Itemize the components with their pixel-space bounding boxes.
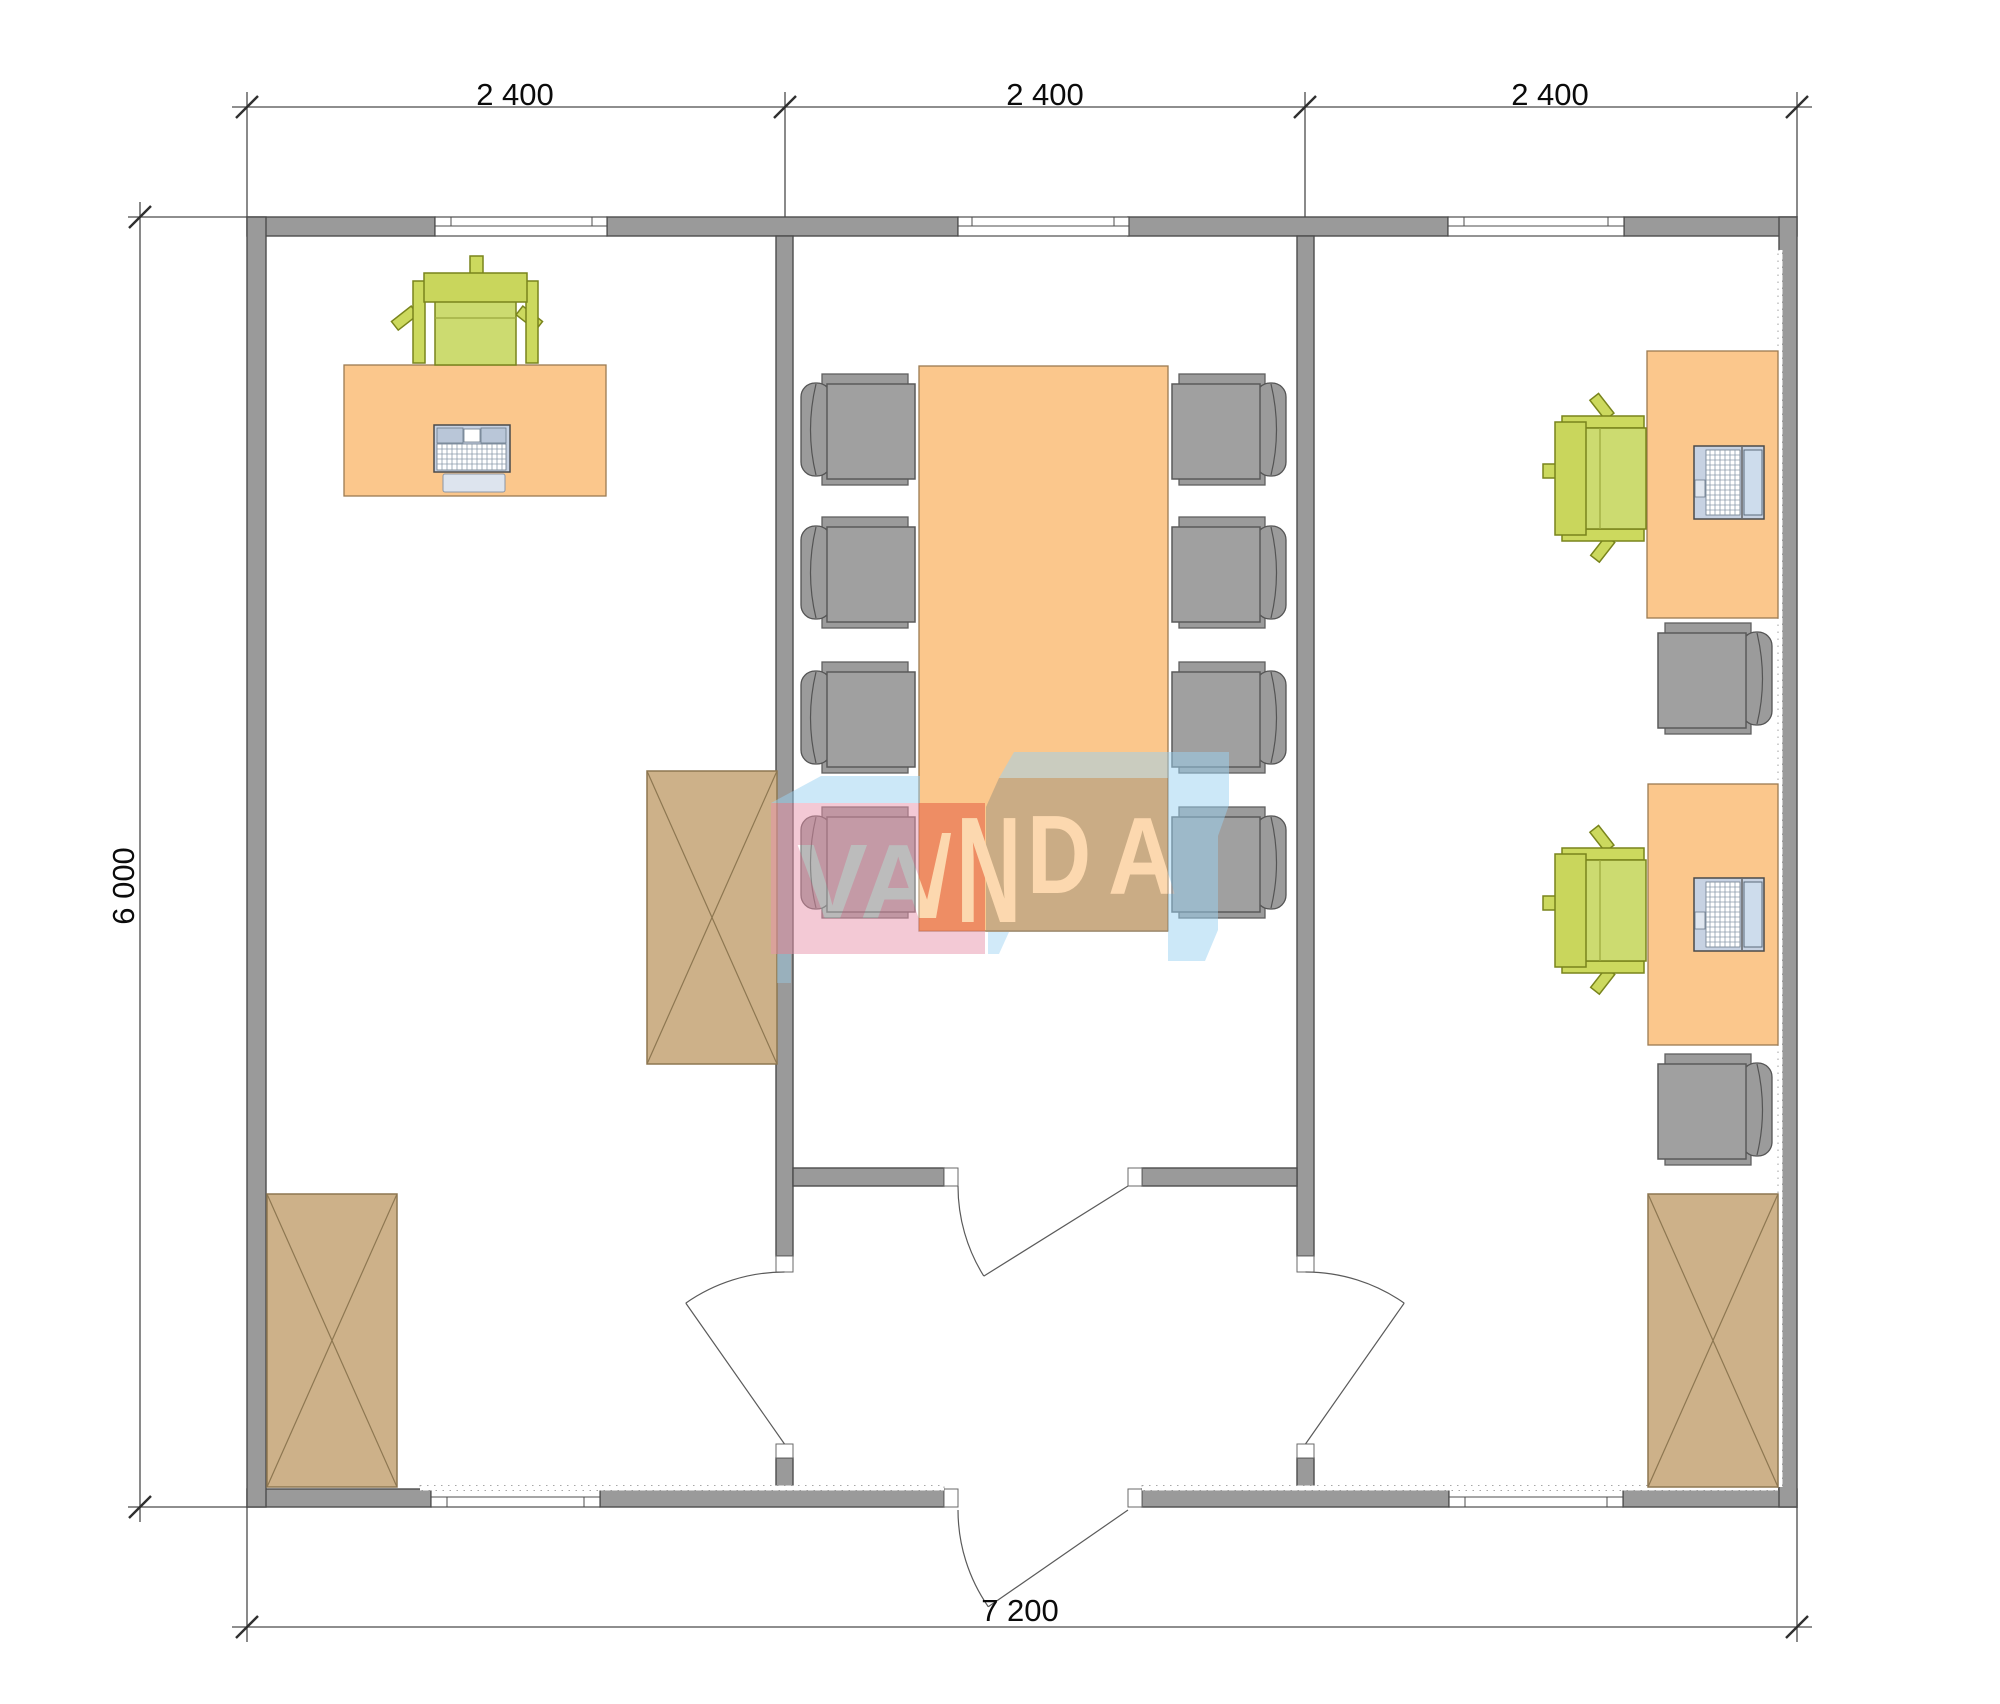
svg-text:2 400: 2 400 <box>476 77 554 112</box>
svg-text:7 200: 7 200 <box>981 1593 1059 1628</box>
svg-text:6 000: 6 000 <box>106 847 141 925</box>
svg-text:2 400: 2 400 <box>1511 77 1589 112</box>
svg-text:2 400: 2 400 <box>1006 77 1084 112</box>
